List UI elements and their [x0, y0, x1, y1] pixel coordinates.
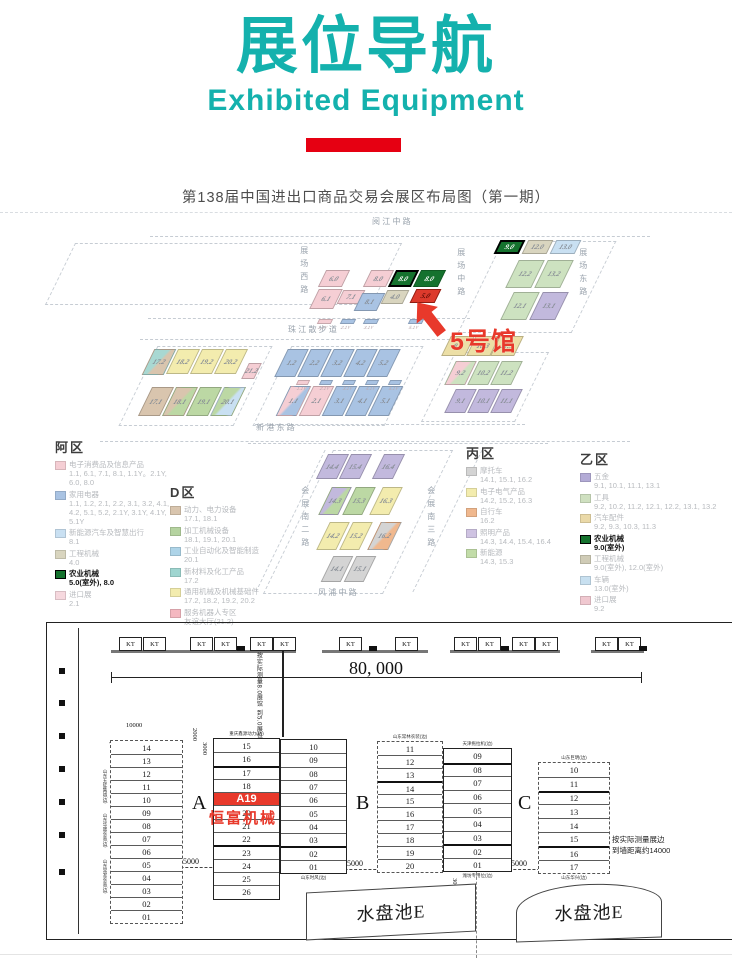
- dim-5000-label: 5000: [183, 857, 199, 866]
- booth-row: 06: [281, 793, 346, 806]
- booth-column-6: 1011121314151617山东巨明(边)山东华兴(边): [538, 762, 610, 874]
- wall-column-tick: [59, 869, 65, 875]
- section-label-B: B: [356, 792, 369, 815]
- kt-box: KT: [595, 637, 618, 651]
- dim-80000-tick: [641, 672, 642, 683]
- booth-row: 14: [111, 741, 182, 754]
- leader-line: [282, 650, 284, 737]
- booth-row: 18: [378, 833, 442, 846]
- booth-row: 12: [378, 755, 442, 768]
- bottom-divider: [0, 954, 732, 955]
- measure-note-right: 按实际测量展边到墙距离约14000: [612, 834, 670, 857]
- booth-column-bottom-label: 山东华兴(边): [539, 875, 609, 881]
- dim-small-label: 2000: [191, 728, 198, 741]
- booth-row: 12: [111, 767, 182, 780]
- plan-left-wall: [78, 628, 79, 934]
- section-label-C: C: [518, 792, 531, 815]
- kt-box: KT: [454, 637, 477, 651]
- wall-notch: [501, 646, 509, 651]
- section-label-A: A: [192, 792, 206, 815]
- booth-row: 09: [281, 753, 346, 766]
- booth-row: 07: [111, 832, 182, 845]
- booth-row: 10: [539, 763, 609, 777]
- booth-row: 04: [111, 871, 182, 884]
- dim-small-label: 3000: [201, 742, 208, 755]
- floorplan-canvas: KTKTKTKTKTKTKTKTKTKTKTKTKTKT80, 000按实际测量…: [0, 0, 732, 960]
- booth-row: 15: [378, 794, 442, 807]
- booth-row: 15: [539, 832, 609, 846]
- note-line: 到墙距离约14000: [612, 845, 670, 856]
- booth-row: A19: [214, 792, 279, 805]
- booth-row: 11: [539, 777, 609, 791]
- booth-row: 17: [214, 766, 279, 779]
- booth-row: 25: [214, 872, 279, 885]
- booth-row: 26: [214, 885, 279, 898]
- highlight-booth-company: 恒富机械: [209, 807, 277, 828]
- booth-column-5: 090807060504030201天津拖拉机(边)潍坊专用位(边): [443, 748, 512, 872]
- booth-row: 13: [539, 804, 609, 818]
- dim-small-label: 10000: [126, 722, 142, 729]
- wall-column-tick: [59, 668, 65, 674]
- booth-row: 01: [111, 910, 182, 923]
- note-line: 按实际测量展边: [612, 834, 670, 845]
- kt-box: KT: [339, 637, 362, 651]
- booth-row: 11: [111, 780, 182, 793]
- wall-notch: [639, 646, 647, 651]
- booth-row: 04: [281, 820, 346, 833]
- dim-5000-label: 5000: [511, 859, 527, 868]
- booth-row: 03: [111, 884, 182, 897]
- booth-row: 04: [444, 817, 511, 831]
- kt-box: KT: [535, 637, 558, 651]
- booth-row: 14: [378, 781, 442, 794]
- booth-row: 16: [539, 846, 609, 860]
- booth-row: 02: [444, 844, 511, 858]
- booth-row: 16: [378, 807, 442, 820]
- booth-row: 02: [111, 897, 182, 910]
- wall-notch: [369, 646, 377, 651]
- booth-row: 17: [378, 820, 442, 833]
- booth-row: 16: [214, 752, 279, 765]
- booth-row: 12: [539, 791, 609, 805]
- wall-notch: [237, 646, 245, 651]
- booth-row: 09: [111, 806, 182, 819]
- booth-row: 19: [378, 846, 442, 859]
- kt-box: KT: [119, 637, 142, 651]
- booth-row: 24: [214, 859, 279, 872]
- wall-column-tick: [59, 766, 65, 772]
- booth-row: 11: [378, 742, 442, 755]
- pool-dashed-divider: [476, 872, 477, 958]
- kt-box: KT: [143, 637, 166, 651]
- booth-row: 20: [378, 859, 442, 872]
- booth-row: 10: [111, 793, 182, 806]
- booth-column-bottom-label: 潍坊专用位(边): [444, 873, 511, 879]
- wall-column-tick: [59, 733, 65, 739]
- kt-box: KT: [214, 637, 237, 651]
- booth-column-left-label: 山东华盛农装(边): [102, 813, 108, 848]
- dim-5000-label: 5000: [347, 859, 363, 868]
- booth-column-4: 11121314151617181920山东常林农装(边): [377, 741, 443, 873]
- booth-row: 06: [444, 790, 511, 804]
- booth-column-top-label: 天津拖拉机(边): [444, 741, 511, 747]
- booth-column-top-label: 山东巨明(边): [539, 755, 609, 761]
- booth-column-top-label: 重庆鑫源动力(边): [214, 731, 279, 737]
- booth-row: 07: [281, 780, 346, 793]
- kt-box: KT: [395, 637, 418, 651]
- booth-column-3: 10090807060504030201山东时风(边): [280, 739, 347, 874]
- wall-column-tick: [59, 700, 65, 706]
- kt-box: KT: [190, 637, 213, 651]
- booth-row: 07: [444, 776, 511, 790]
- kt-box: KT: [273, 637, 296, 651]
- booth-row: 14: [539, 818, 609, 832]
- booth-row: 18: [214, 779, 279, 792]
- booth-row: 08: [281, 767, 346, 780]
- booth-row: 13: [378, 768, 442, 781]
- booth-column-top-label: 山东常林农装(边): [378, 734, 442, 740]
- booth-row: 22: [214, 832, 279, 845]
- booth-column-bottom-label: 山东时风(边): [281, 875, 346, 881]
- booth-row: 03: [281, 833, 346, 846]
- booth-row: 02: [281, 846, 346, 859]
- booth-row: 15: [214, 739, 279, 752]
- booth-row: 01: [281, 860, 346, 873]
- booth-row: 10: [281, 740, 346, 753]
- kt-box: KT: [618, 637, 641, 651]
- booth-row: 13: [111, 754, 182, 767]
- booth-column-left-label: 山东常发农装(边): [102, 859, 108, 894]
- booth-row: 08: [111, 819, 182, 832]
- booth-row: 05: [281, 806, 346, 819]
- page: 展位导航 Exhibited Equipment 第138届中国进出口商品交易会…: [0, 0, 732, 960]
- kt-box: KT: [250, 637, 273, 651]
- booth-row: 08: [444, 763, 511, 777]
- booth-row: 23: [214, 845, 279, 858]
- booth-row: 05: [111, 858, 182, 871]
- booth-column-1: 1413121110090807060504030201山东五征集团(边)山东华…: [110, 740, 183, 924]
- booth-row: 09: [444, 749, 511, 763]
- water-pool: 水盘池E: [306, 884, 476, 941]
- kt-box: KT: [512, 637, 535, 651]
- booth-column-left-label: 山东五征集团(边): [102, 769, 108, 804]
- booth-row: 03: [444, 831, 511, 845]
- booth-row: 06: [111, 845, 182, 858]
- dim-80000-label: 80, 000: [111, 658, 641, 679]
- kt-box: KT: [478, 637, 501, 651]
- booth-row: 17: [539, 860, 609, 874]
- booth-row: 01: [444, 858, 511, 872]
- wall-column-tick: [59, 832, 65, 838]
- wall-column-tick: [59, 799, 65, 805]
- booth-row: 05: [444, 803, 511, 817]
